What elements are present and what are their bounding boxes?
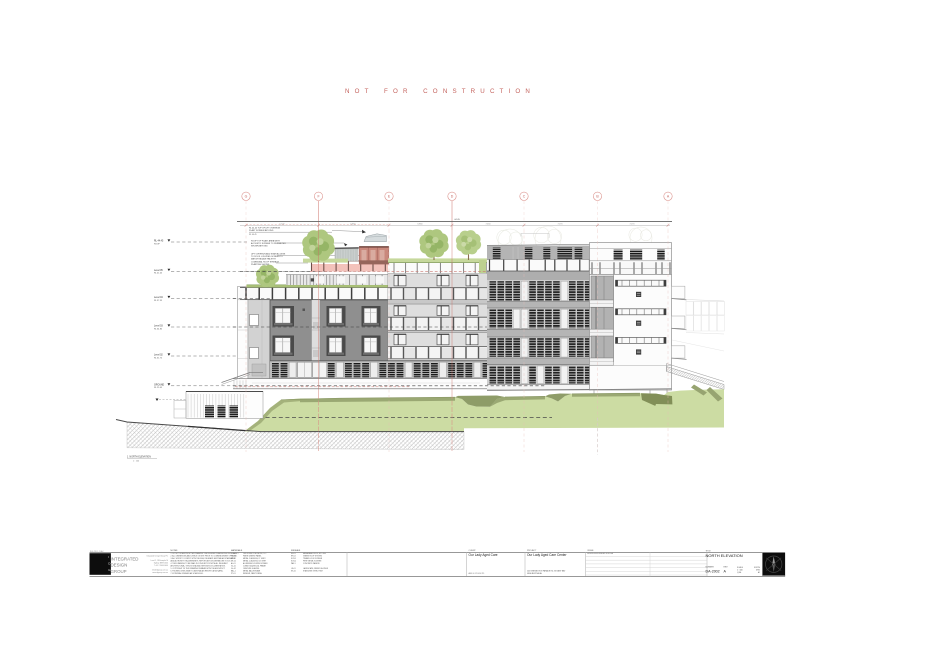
svg-text:MT-02: MT-02 <box>231 561 236 563</box>
svg-text:RL 25.45: RL 25.45 <box>154 387 163 389</box>
svg-text:FINISHES: FINISHES <box>291 550 301 552</box>
svg-text:RF-01: RF-01 <box>291 553 296 555</box>
svg-text:RF-02: RF-02 <box>291 556 296 558</box>
svg-text:6.860: 6.860 <box>417 223 423 225</box>
svg-text:RL 44.45: RL 44.45 <box>249 234 257 236</box>
svg-text:Level 02: Level 02 <box>154 355 163 357</box>
svg-text:REV: REV <box>724 566 729 568</box>
svg-text:1 : 100: 1 : 100 <box>133 460 140 462</box>
svg-text:7.460: 7.460 <box>485 223 491 225</box>
svg-text:NUMBER: NUMBER <box>706 566 715 568</box>
svg-text:TIMBER-LOOK SCREEN: TIMBER-LOOK SCREEN <box>303 558 323 560</box>
svg-text:GROUP: GROUP <box>111 569 127 574</box>
svg-text:5.100: 5.100 <box>279 223 285 225</box>
svg-text:RL 41.05: RL 41.05 <box>154 273 163 275</box>
svg-text:SHOWN BEYOND: SHOWN BEYOND <box>251 245 268 247</box>
svg-text:N O T F O R C O N S T R: N O T F O R C O N S T R U C T I O N <box>345 88 532 95</box>
svg-text:Sydney NSW 2000: Sydney NSW 2000 <box>154 562 168 564</box>
svg-text:44.45: 44.45 <box>454 219 460 221</box>
svg-text:ROOF: ROOF <box>154 243 161 245</box>
svg-text:RL 44.45 TOP OF LIFT OVERRUN: RL 44.45 TOP OF LIFT OVERRUN <box>249 228 281 230</box>
svg-text:DWG: DWG <box>756 570 761 572</box>
svg-text:NORTH: NORTH <box>754 567 761 569</box>
svg-text:DA-2002: DA-2002 <box>706 569 720 573</box>
svg-text:PT-01: PT-01 <box>231 573 236 575</box>
svg-text:G: G <box>245 195 248 199</box>
svg-text:RL 34.85: RL 34.85 <box>154 328 163 330</box>
svg-text:GL-02: GL-02 <box>231 568 236 570</box>
svg-text:NORTH ELEVATION: NORTH ELEVATION <box>706 553 743 558</box>
svg-text:PROJECT: PROJECT <box>527 550 537 552</box>
svg-text:GL-01: GL-01 <box>231 565 236 567</box>
svg-text:SCR-1: SCR-1 <box>291 558 296 560</box>
svg-text:Level 05: Level 05 <box>154 270 163 272</box>
svg-text:DESIGN: DESIGN <box>111 563 128 568</box>
svg-text:RL 37.95: RL 37.95 <box>154 300 163 302</box>
svg-text:NOTES: NOTES <box>171 550 179 552</box>
svg-text:OFF-FORM CONCRETE, CL 2: OFF-FORM CONCRETE, CL 2 <box>243 553 266 555</box>
svg-text:CONC: CONC <box>231 553 237 555</box>
svg-text:TO ROOF. LOUVRED SCREEN TO: TO ROOF. LOUVRED SCREEN TO <box>251 256 283 258</box>
svg-text:Our Lady Aged Care: Our Lady Aged Care <box>469 553 498 557</box>
svg-text:F: F <box>317 195 319 199</box>
svg-text:6.860: 6.860 <box>350 223 356 225</box>
svg-text:Level 04: Level 04 <box>154 297 163 299</box>
svg-text:ISSUE: ISSUE <box>588 550 595 552</box>
svg-text:Level 03: Level 03 <box>154 326 163 328</box>
svg-text:GROUND: GROUND <box>154 384 165 386</box>
svg-text:7.270: 7.270 <box>629 223 635 225</box>
svg-text:SCR-2: SCR-2 <box>291 561 296 563</box>
svg-text:SS-01: SS-01 <box>291 570 296 572</box>
svg-text:MT-01: MT-01 <box>231 558 236 560</box>
svg-text:Our Lady Aged Care Center: Our Lady Aged Care Center <box>527 553 567 557</box>
svg-text:CLIENT: CLIENT <box>469 550 477 552</box>
svg-text:FC-01: FC-01 <box>231 556 236 558</box>
svg-text:TITLE: TITLE <box>706 550 712 552</box>
svg-text:7.270: 7.270 <box>557 223 563 225</box>
svg-text:T +61 2 9000 0000: T +61 2 9000 0000 <box>154 565 168 567</box>
svg-text:GREEN ROOF SYSTEM: GREEN ROOF SYSTEM <box>303 556 322 558</box>
svg-text:1 : 100: 1 : 100 <box>737 570 743 572</box>
svg-text:RL 31.75: RL 31.75 <box>154 357 163 359</box>
svg-text:RL 44.45: RL 44.45 <box>154 241 164 243</box>
svg-text:LS-01: LS-01 <box>291 568 296 570</box>
svg-text:INTEGRATED: INTEGRATED <box>111 556 139 561</box>
